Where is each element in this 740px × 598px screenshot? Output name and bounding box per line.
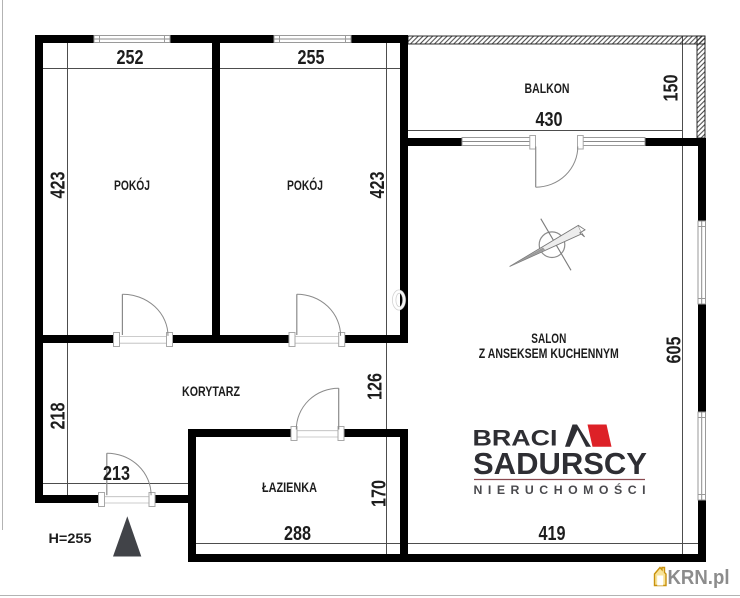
svg-text:252: 252 xyxy=(117,47,144,69)
svg-text:KORYTARZ: KORYTARZ xyxy=(182,384,240,399)
svg-text:255: 255 xyxy=(298,47,325,69)
svg-text:SADURSCY: SADURSCY xyxy=(473,447,647,481)
svg-text:419: 419 xyxy=(539,523,566,545)
svg-text:423: 423 xyxy=(367,172,389,199)
svg-text:Z ANSEKSEM KUCHENNYM: Z ANSEKSEM KUCHENNYM xyxy=(479,346,619,361)
svg-text:POKÓJ: POKÓJ xyxy=(114,178,150,193)
svg-text:218: 218 xyxy=(48,403,70,430)
svg-text:430: 430 xyxy=(536,109,563,131)
svg-text:POKÓJ: POKÓJ xyxy=(287,178,323,193)
svg-text:288: 288 xyxy=(284,523,311,545)
svg-text:SALON: SALON xyxy=(531,331,566,346)
svg-text:BALKON: BALKON xyxy=(525,81,570,96)
svg-text:H=255: H=255 xyxy=(49,530,92,546)
svg-text:423: 423 xyxy=(48,172,70,199)
svg-text:KRN.pl: KRN.pl xyxy=(668,567,730,589)
svg-text:150: 150 xyxy=(661,75,683,102)
svg-text:126: 126 xyxy=(365,373,387,400)
svg-text:NIERUCHOMOŚCI: NIERUCHOMOŚCI xyxy=(474,482,646,497)
svg-text:605: 605 xyxy=(664,337,686,364)
svg-text:ŁAZIENKA: ŁAZIENKA xyxy=(262,480,317,495)
svg-text:213: 213 xyxy=(103,463,130,485)
svg-text:170: 170 xyxy=(369,480,391,507)
